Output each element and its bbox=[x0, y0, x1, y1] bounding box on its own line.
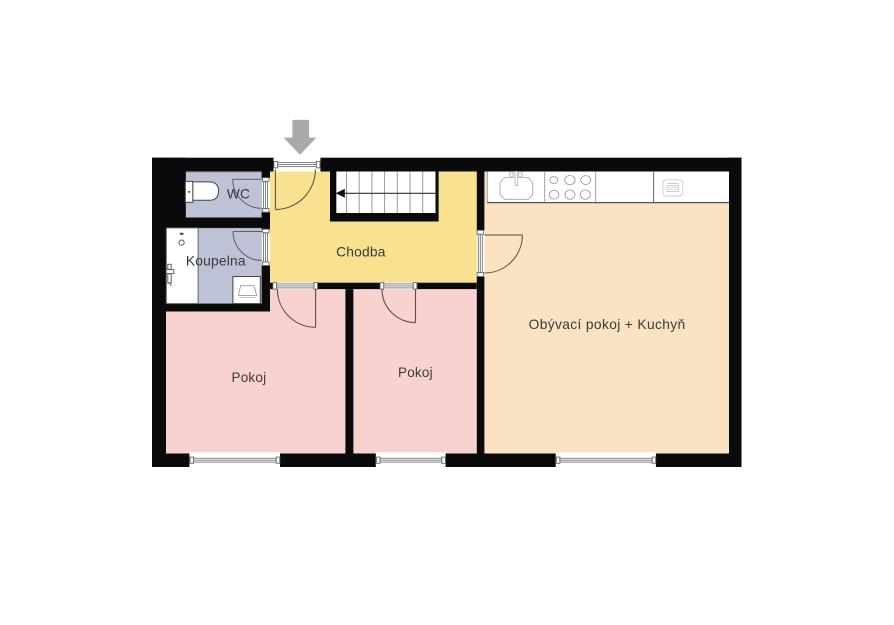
svg-text:WC: WC bbox=[227, 187, 250, 202]
svg-text:Koupelna: Koupelna bbox=[186, 253, 246, 268]
svg-text:Chodba: Chodba bbox=[336, 245, 386, 260]
svg-text:Obývací pokoj + Kuchyň: Obývací pokoj + Kuchyň bbox=[529, 317, 686, 332]
svg-text:Pokoj: Pokoj bbox=[232, 370, 267, 385]
svg-text:Pokoj: Pokoj bbox=[398, 365, 433, 380]
